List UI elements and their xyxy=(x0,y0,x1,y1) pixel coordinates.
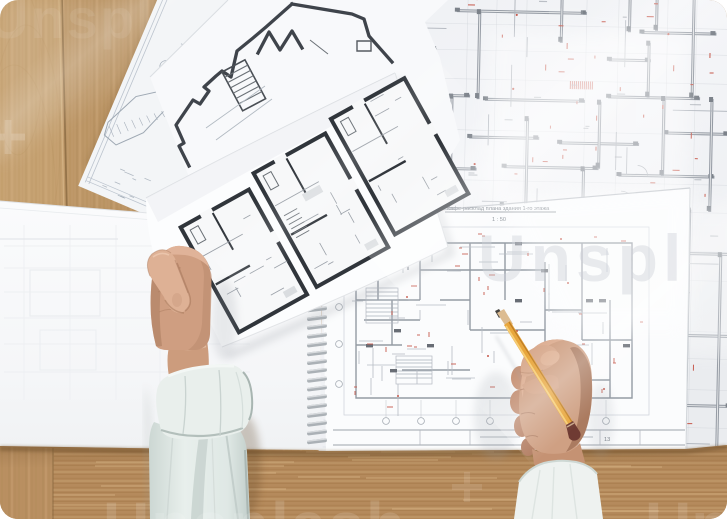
svg-text:Unspl: Unspl xyxy=(0,0,154,50)
svg-text:Unsplash: Unsplash xyxy=(103,489,407,519)
svg-text:Unspl: Unspl xyxy=(478,221,686,295)
svg-text:Un: Un xyxy=(645,489,727,519)
